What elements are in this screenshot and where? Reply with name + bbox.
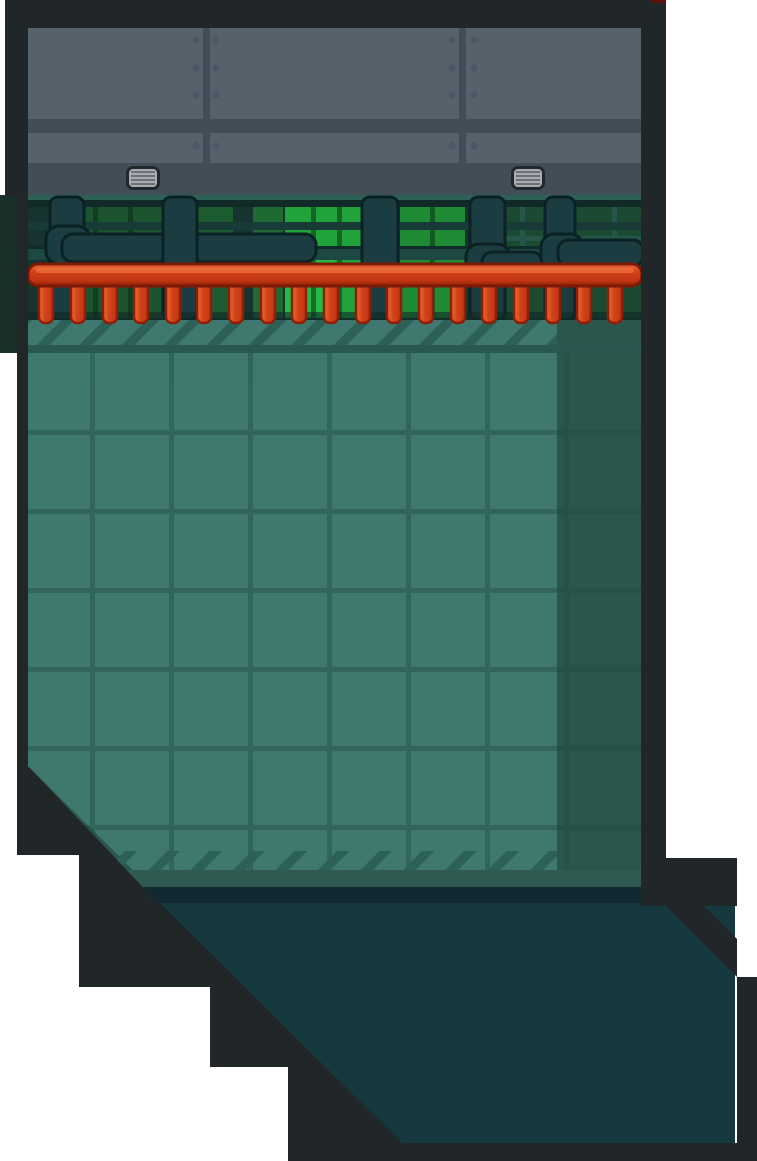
- frame-top: [5, 0, 666, 28]
- game-scene: [0, 0, 757, 1161]
- frame-left-block-green: [0, 195, 17, 353]
- wall-panel-row2: [28, 133, 641, 163]
- wall: [28, 28, 641, 195]
- frame-left-top: [5, 0, 28, 195]
- vent-left[interactable]: [126, 166, 160, 190]
- floor-hazard-top-edge: [28, 345, 641, 353]
- manifold-bar: [28, 264, 642, 286]
- pipe-horizontal-5: [558, 240, 643, 266]
- floor-lit-area: [28, 320, 557, 887]
- frame-left-column: [17, 353, 28, 855]
- frame-left-block: [17, 195, 28, 353]
- manifold-bar-highlight: [36, 268, 634, 273]
- wall-panel-row1: [28, 28, 641, 119]
- scene-svg: [0, 0, 757, 1161]
- frame-right-bottom-column: [737, 977, 757, 1161]
- floor-bottom-band: [120, 870, 641, 887]
- floor: [28, 320, 641, 903]
- vent-right[interactable]: [511, 166, 545, 190]
- frame-right-extension: [641, 858, 737, 906]
- frame-red-chip: [652, 0, 666, 3]
- frame-right-column: [641, 0, 666, 858]
